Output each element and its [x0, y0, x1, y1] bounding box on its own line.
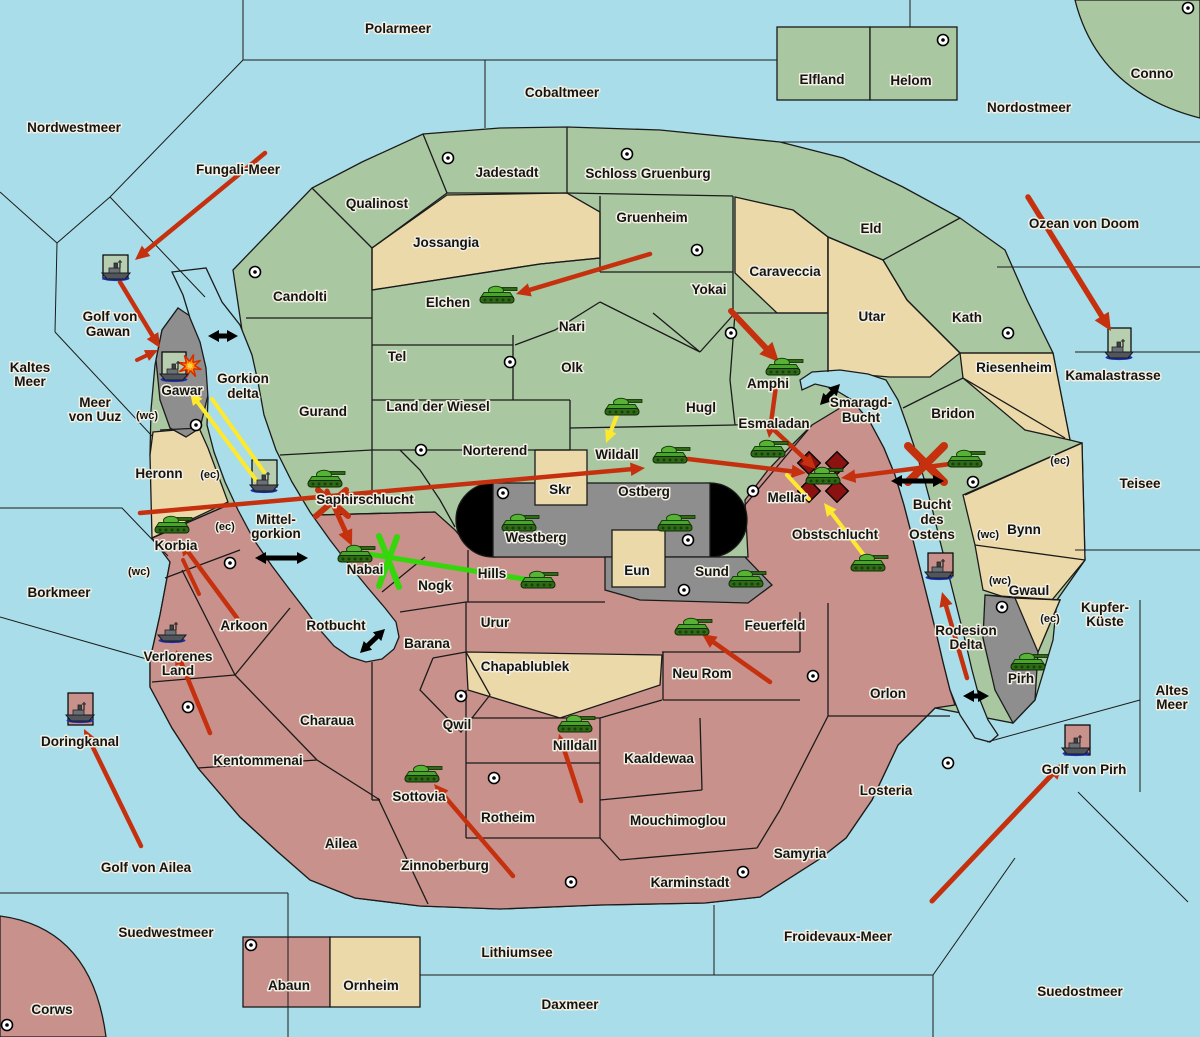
- label-eun: Eun: [624, 563, 650, 578]
- supply-center-icon: [622, 149, 633, 160]
- label-ostens: Ostens: [909, 527, 955, 542]
- label-verlorenes: Verlorenes: [143, 649, 212, 664]
- label-caraveccia: Caraveccia: [749, 264, 821, 279]
- label-candolti: Candolti: [273, 289, 327, 304]
- supply-center-icon: [692, 245, 703, 256]
- label-norterend: Norterend: [463, 443, 528, 458]
- label-nilldall: Nilldall: [553, 738, 597, 753]
- label-golf-von: Golf von: [83, 309, 138, 324]
- label-cobaltmeer: Cobaltmeer: [525, 85, 600, 100]
- supply-center-icon: [1183, 3, 1194, 14]
- supply-center-icon: [738, 867, 749, 878]
- label-gwaul: Gwaul: [1009, 583, 1050, 598]
- label-golf-von-pirh: Golf von Pirh: [1042, 762, 1127, 777]
- label-nordostmeer: Nordostmeer: [987, 100, 1072, 115]
- label-gawan: Gawan: [86, 324, 130, 339]
- label-suedwestmeer: Suedwestmeer: [118, 925, 214, 940]
- label-elchen: Elchen: [426, 295, 470, 310]
- label--wc-: (wc): [977, 529, 999, 541]
- label-barana: Barana: [404, 636, 450, 651]
- supply-center-icon: [997, 602, 1008, 613]
- label-gorkion: Gorkion: [217, 371, 269, 386]
- label-rotbucht: Rotbucht: [306, 618, 366, 633]
- label-land-der-wiesel: Land der Wiesel: [386, 399, 489, 414]
- label-gruenheim: Gruenheim: [616, 210, 687, 225]
- label-eld: Eld: [860, 221, 881, 236]
- label-sottovia: Sottovia: [392, 789, 446, 804]
- label-hugl: Hugl: [686, 400, 716, 415]
- region-eun: [612, 530, 665, 587]
- label-korbia: Korbia: [155, 538, 198, 553]
- supply-center-icon: [489, 773, 500, 784]
- label-nabai: Nabai: [347, 562, 384, 577]
- supply-center-icon: [2, 1020, 13, 1031]
- label-doringkanal: Doringkanal: [41, 734, 119, 749]
- label-arkoon: Arkoon: [220, 618, 267, 633]
- label-bucht: Bucht: [913, 497, 952, 512]
- label-kaaldewaa: Kaaldewaa: [624, 751, 694, 766]
- label-delta: Delta: [949, 637, 983, 652]
- supply-center-icon: [498, 488, 509, 499]
- label--wc-: (wc): [128, 566, 150, 578]
- label-kaltes: Kaltes: [10, 360, 51, 375]
- label-charaua: Charaua: [300, 713, 355, 728]
- label-feuerfeld: Feuerfeld: [745, 618, 806, 633]
- label-schloss-gruenburg: Schloss Gruenburg: [585, 166, 710, 181]
- label-k-ste: Küste: [1086, 614, 1124, 629]
- label-heronn: Heronn: [135, 466, 182, 481]
- label--wc-: (wc): [989, 575, 1011, 587]
- label-skr: Skr: [549, 482, 572, 497]
- label-delta: delta: [227, 386, 259, 401]
- label-abaun: Abaun: [268, 978, 310, 993]
- label-bucht: Bucht: [842, 410, 881, 425]
- label-ornheim: Ornheim: [343, 978, 399, 993]
- label-amphi: Amphi: [747, 376, 789, 391]
- label-nari: Nari: [559, 319, 585, 334]
- label-borkmeer: Borkmeer: [27, 585, 91, 600]
- label-zinnoberburg: Zinnoberburg: [401, 858, 489, 873]
- label-conno: Conno: [1131, 66, 1174, 81]
- supply-center-icon: [679, 585, 690, 596]
- label-ostberg: Ostberg: [618, 484, 670, 499]
- label-golf-von-ailea: Golf von Ailea: [101, 860, 192, 875]
- label-olk: Olk: [561, 360, 583, 375]
- label-qwil: Qwil: [443, 717, 472, 732]
- supply-center-icon: [566, 877, 577, 888]
- label-froidevaux-meer: Froidevaux-Meer: [784, 929, 893, 944]
- label-kamalastrasse: Kamalastrasse: [1065, 368, 1161, 383]
- supply-center-icon: [808, 671, 819, 682]
- label-jossangia: Jossangia: [413, 235, 480, 250]
- label--wc-: (wc): [136, 410, 158, 422]
- label-altes: Altes: [1155, 683, 1188, 698]
- label-smaragd-: Smaragd-: [830, 395, 892, 410]
- label-sund: Sund: [695, 564, 729, 579]
- label-meer: Meer: [14, 374, 46, 389]
- label-corws: Corws: [31, 1002, 72, 1017]
- label-utar: Utar: [858, 309, 886, 324]
- supply-center-icon: [726, 328, 737, 339]
- region-ornheim-island: [330, 937, 420, 1007]
- label-jadestadt: Jadestadt: [475, 165, 539, 180]
- label-qualinost: Qualinost: [346, 196, 409, 211]
- supply-center-icon: [246, 940, 257, 951]
- supply-center-icon: [443, 153, 454, 164]
- label-nordwestmeer: Nordwestmeer: [27, 120, 122, 135]
- label-samyria: Samyria: [774, 846, 827, 861]
- label-nogk: Nogk: [418, 578, 452, 593]
- supply-center-icon: [456, 691, 467, 702]
- label-ailea: Ailea: [325, 836, 358, 851]
- label-tel: Tel: [388, 349, 407, 364]
- label-saphirschlucht: Saphirschlucht: [316, 492, 414, 507]
- label-von-uuz: von Uuz: [69, 409, 122, 424]
- supply-center-icon: [943, 758, 954, 769]
- label-neu-rom: Neu Rom: [672, 666, 731, 681]
- supply-center-icon: [250, 267, 261, 278]
- label-kath: Kath: [952, 310, 982, 325]
- label-urur: Urur: [481, 615, 510, 630]
- label-daxmeer: Daxmeer: [541, 997, 599, 1012]
- label-chapablublek: Chapablublek: [481, 659, 570, 674]
- label-orlon: Orlon: [870, 686, 906, 701]
- label-lithiumsee: Lithiumsee: [481, 945, 553, 960]
- label-meer: Meer: [1156, 697, 1188, 712]
- label-hills: Hills: [478, 566, 507, 581]
- label--ec-: (ec): [200, 469, 220, 481]
- label-suedostmeer: Suedostmeer: [1037, 984, 1123, 999]
- label-obstschlucht: Obstschlucht: [792, 527, 879, 542]
- label-pirh: Pirh: [1008, 671, 1034, 686]
- supply-center-icon: [191, 420, 202, 431]
- war-map: PolarmeerCobaltmeerNordwestmeerFungali-M…: [0, 0, 1200, 1037]
- label-teisee: Teisee: [1119, 476, 1161, 491]
- label-bynn: Bynn: [1007, 522, 1041, 537]
- label-gawar: Gawar: [161, 383, 203, 398]
- label-yokai: Yokai: [691, 282, 726, 297]
- label-bridon: Bridon: [931, 406, 975, 421]
- label-mittel-: Mittel-: [256, 512, 296, 527]
- label-mellar: Mellar: [767, 490, 807, 505]
- supply-center-icon: [416, 445, 427, 456]
- label-helom: Helom: [890, 73, 931, 88]
- label-kentommenai: Kentommenai: [213, 753, 302, 768]
- label-polarmeer: Polarmeer: [365, 21, 432, 36]
- supply-center-icon: [748, 486, 759, 497]
- label--ec-: (ec): [215, 521, 235, 533]
- label-gorkion: gorkion: [251, 526, 301, 541]
- label-kupfer-: Kupfer-: [1081, 600, 1129, 615]
- label-elfland: Elfland: [799, 72, 844, 87]
- map-canvas: PolarmeerCobaltmeerNordwestmeerFungali-M…: [0, 0, 1200, 1037]
- label-karminstadt: Karminstadt: [651, 875, 730, 890]
- supply-center-icon: [183, 702, 194, 713]
- label-westberg: Westberg: [505, 530, 566, 545]
- label-losteria: Losteria: [860, 783, 913, 798]
- label-fungali-meer: Fungali-Meer: [196, 162, 281, 177]
- supply-center-icon: [225, 558, 236, 569]
- label--ec-: (ec): [1040, 613, 1060, 625]
- supply-center-icon: [1003, 328, 1014, 339]
- supply-center-icon: [938, 35, 949, 46]
- label-gurand: Gurand: [299, 404, 347, 419]
- label--ec-: (ec): [1050, 455, 1070, 467]
- label-des: des: [920, 512, 943, 527]
- label-meer: Meer: [79, 395, 111, 410]
- label-rotheim: Rotheim: [481, 810, 535, 825]
- region-elfland-island: [777, 27, 870, 100]
- label-riesenheim: Riesenheim: [976, 360, 1052, 375]
- supply-center-icon: [683, 535, 694, 546]
- label-land: Land: [162, 663, 194, 678]
- label-ozean-von-doom: Ozean von Doom: [1029, 216, 1139, 231]
- label-mouchimoglou: Mouchimoglou: [630, 813, 726, 828]
- label-esmaladan: Esmaladan: [738, 416, 809, 431]
- supply-center-icon: [505, 357, 516, 368]
- label-rodesion: Rodesion: [935, 623, 997, 638]
- supply-center-icon: [968, 477, 979, 488]
- label-wildall: Wildall: [595, 447, 638, 462]
